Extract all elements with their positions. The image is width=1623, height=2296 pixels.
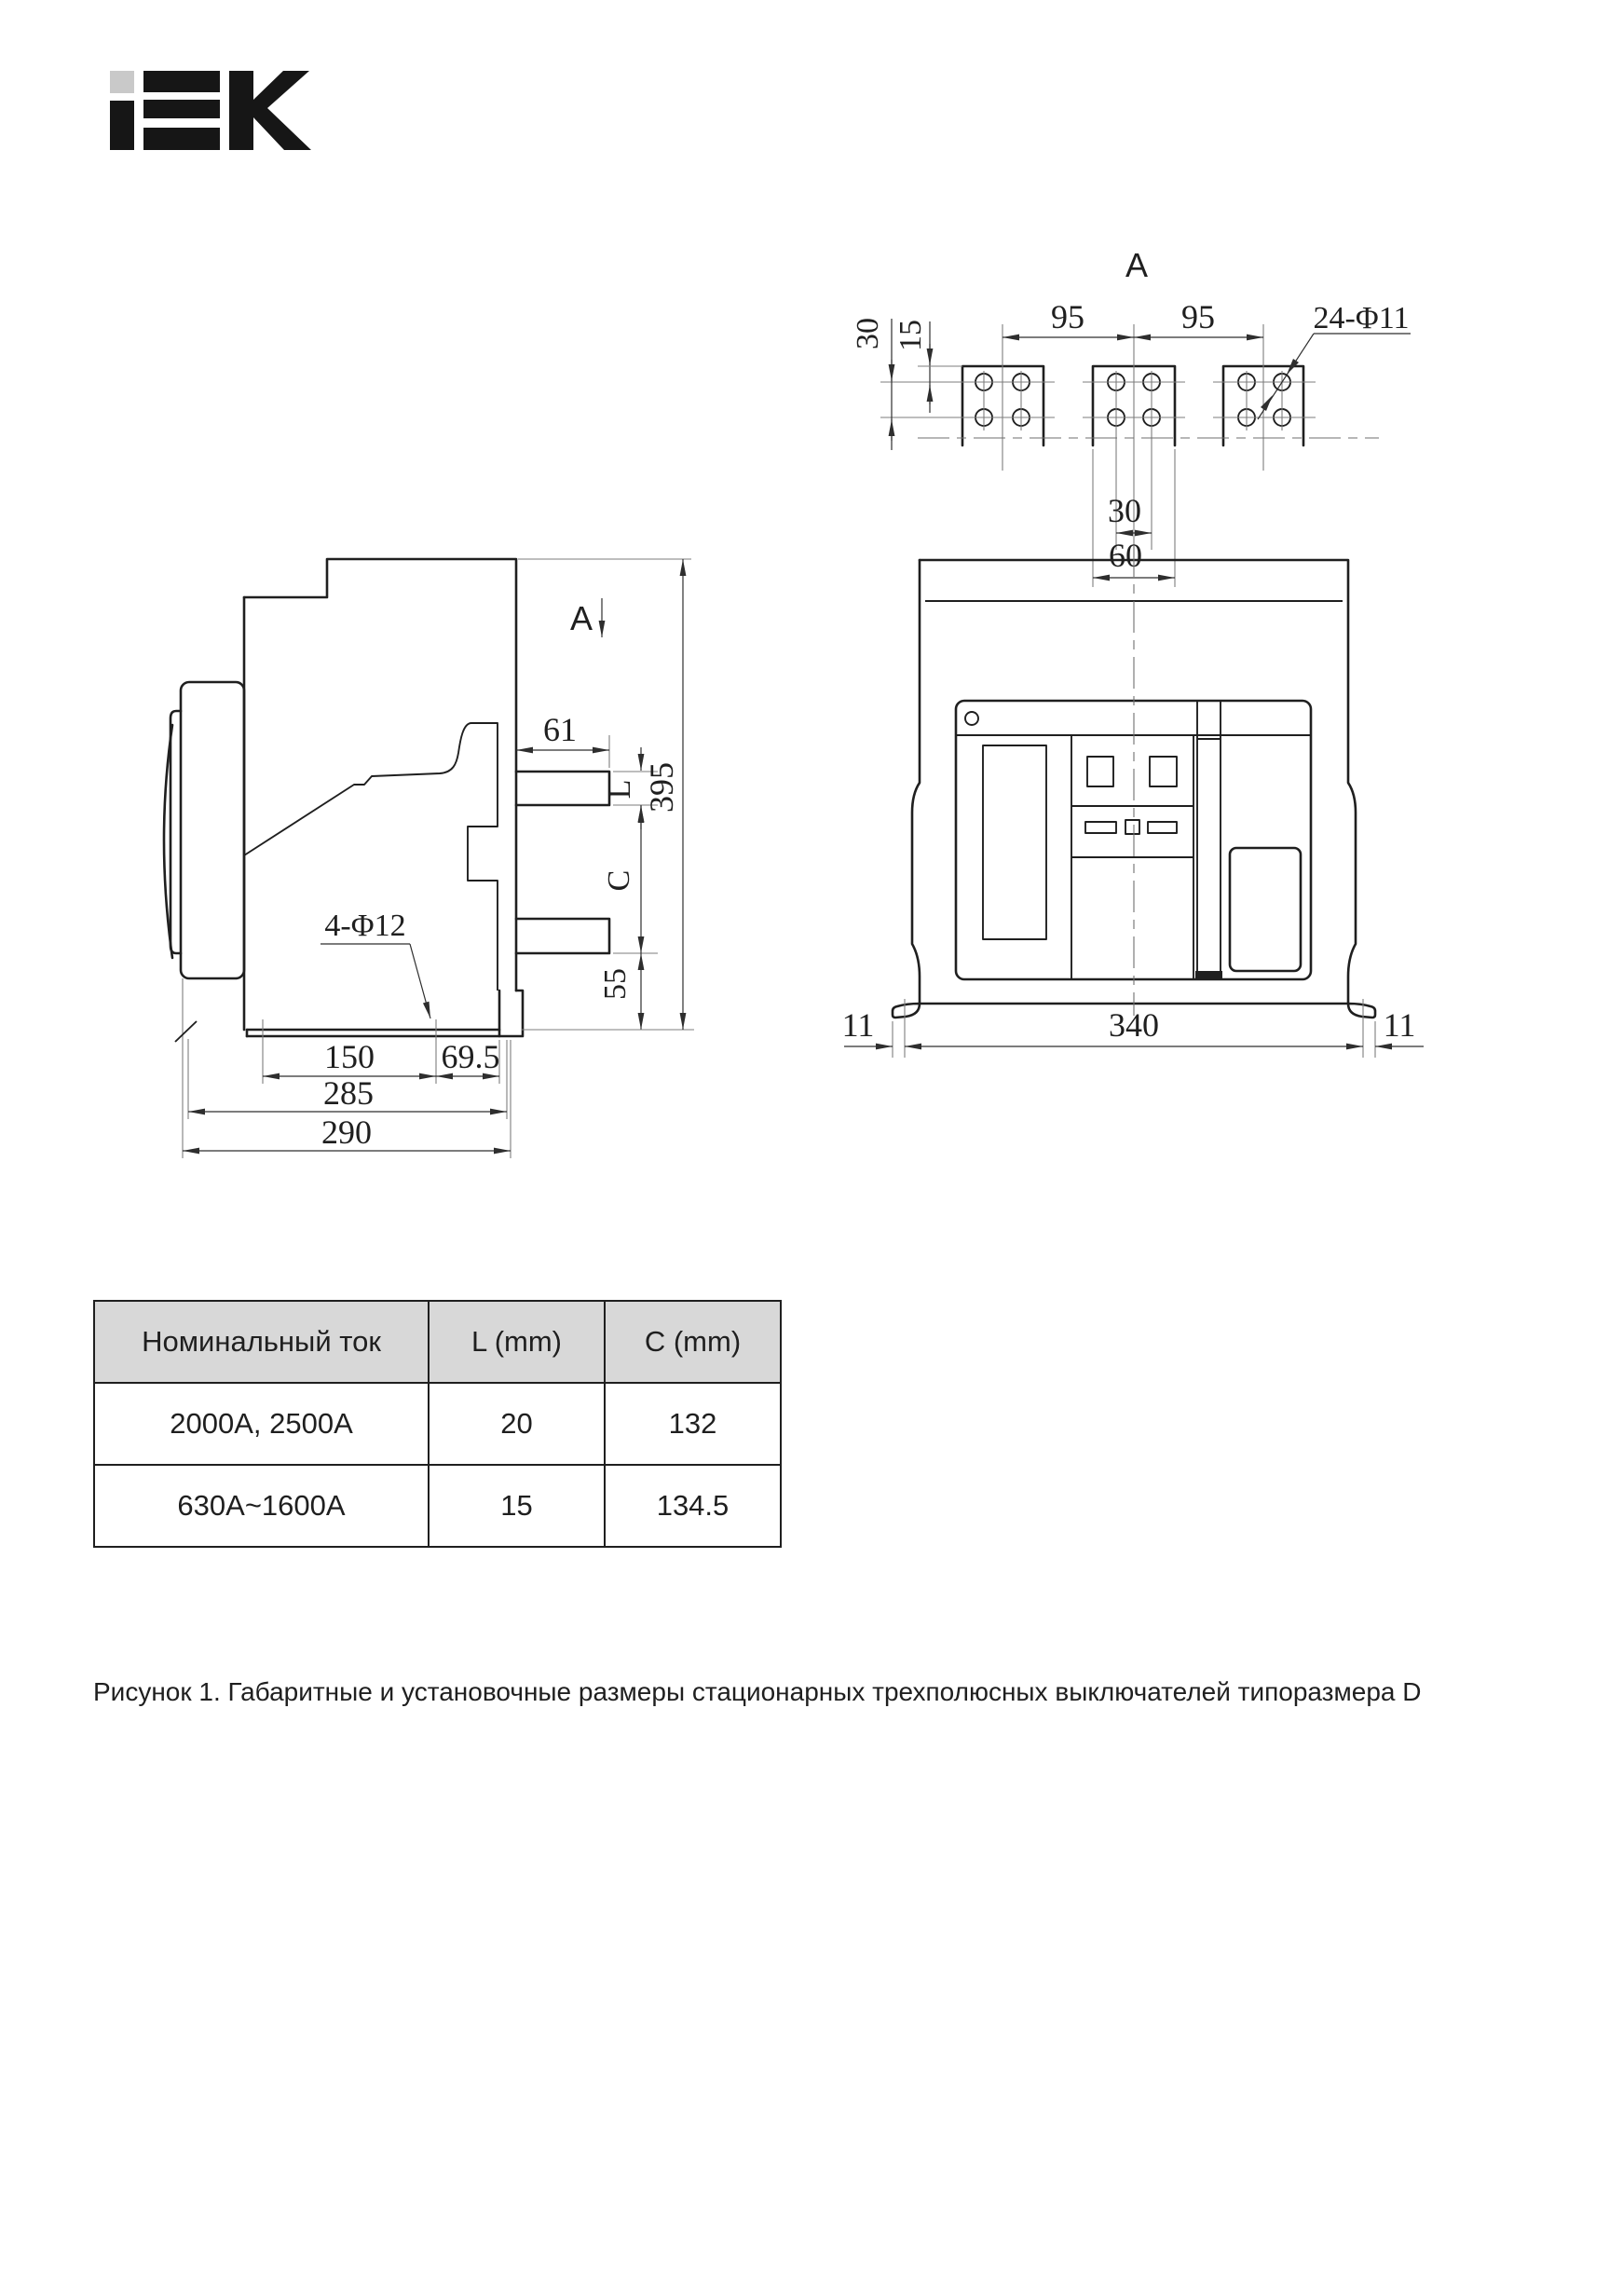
section-label-a: A [1125, 246, 1148, 284]
side-body-top [244, 559, 516, 772]
panel-right-window [1230, 848, 1301, 971]
col-header-l-mm: L (mm) [429, 1301, 605, 1383]
leader-4-f12 [321, 944, 430, 1018]
panel-button-left [1087, 757, 1113, 786]
dim-c: C [602, 870, 636, 892]
dim-395: 395 [643, 762, 680, 813]
break-mark [175, 1021, 197, 1042]
cell-c-2: 134.5 [605, 1465, 781, 1547]
panel-left-window [983, 745, 1046, 939]
panel-strip-base [1195, 971, 1222, 979]
cell-l-1: 20 [429, 1383, 605, 1465]
cell-c-1: 132 [605, 1383, 781, 1465]
dim-11-left: 11 [842, 1006, 875, 1044]
dim-69-5: 69.5 [442, 1038, 500, 1075]
table-row: 630А~1600А 15 134.5 [94, 1465, 781, 1547]
panel-indicator-mid [1125, 820, 1139, 834]
table-header-row: Номинальный ток L (mm) C (mm) [94, 1301, 781, 1383]
dim-4-f12: 4-Φ12 [324, 909, 405, 943]
dim-11-right: 11 [1384, 1006, 1416, 1044]
col-header-rated-current: Номинальный ток [94, 1301, 429, 1383]
side-section-label-a: A [570, 599, 593, 637]
dim-95-left: 95 [1051, 298, 1084, 335]
panel-indicator-right [1148, 822, 1177, 833]
front-foot-right [1348, 1004, 1375, 1018]
front-view: 11 340 11 [842, 545, 1424, 1058]
dim-285: 285 [323, 1074, 374, 1112]
front-body-left [912, 560, 920, 1004]
dim-290: 290 [321, 1114, 372, 1151]
panel-indicator-left [1085, 822, 1116, 833]
dim-340: 340 [1109, 1006, 1159, 1044]
side-panel-back [170, 711, 181, 953]
dim-30-span: 30 [1108, 492, 1141, 529]
col-header-c-mm: C (mm) [605, 1301, 781, 1383]
dimensions-table: Номинальный ток L (mm) C (mm) 2000А, 250… [93, 1300, 782, 1548]
section-view-a: A [851, 246, 1411, 587]
front-body-right [920, 560, 1356, 1004]
figure-caption: Рисунок 1. Габаритные и установочные раз… [93, 1677, 1491, 1707]
panel-screw [965, 712, 978, 725]
dim-150: 150 [324, 1038, 375, 1075]
panel-button-right [1150, 757, 1177, 786]
dim-95-right: 95 [1181, 298, 1215, 335]
cell-l-2: 15 [429, 1465, 605, 1547]
cell-current-1: 2000А, 2500А [94, 1383, 429, 1465]
leader-24-f11 [1258, 334, 1411, 419]
pad-holes [975, 374, 1290, 426]
side-view: A 61 L C 55 395 4-Φ12 [164, 559, 694, 1158]
dim-15-offset: 15 [893, 320, 928, 351]
table-row: 2000А, 2500А 20 132 [94, 1383, 781, 1465]
dim-30-edge: 30 [851, 318, 885, 349]
dim-60: 60 [1109, 537, 1142, 574]
side-front-panel [181, 682, 244, 978]
dim-61: 61 [543, 711, 577, 748]
upper-terminal-lug [516, 772, 609, 805]
dim-l: L [603, 780, 637, 799]
dim-55: 55 [598, 968, 633, 1000]
lower-terminal-lug [516, 919, 609, 953]
side-rear-foot [499, 991, 523, 1036]
datasheet-page: { "logo": {"alt": "IEK"}, "colors": { "i… [0, 0, 1623, 2296]
front-foot-left [893, 1004, 920, 1018]
side-interior-profile [244, 723, 498, 991]
dim-24-f11: 24-Φ11 [1314, 301, 1410, 335]
cell-current-2: 630А~1600А [94, 1465, 429, 1547]
